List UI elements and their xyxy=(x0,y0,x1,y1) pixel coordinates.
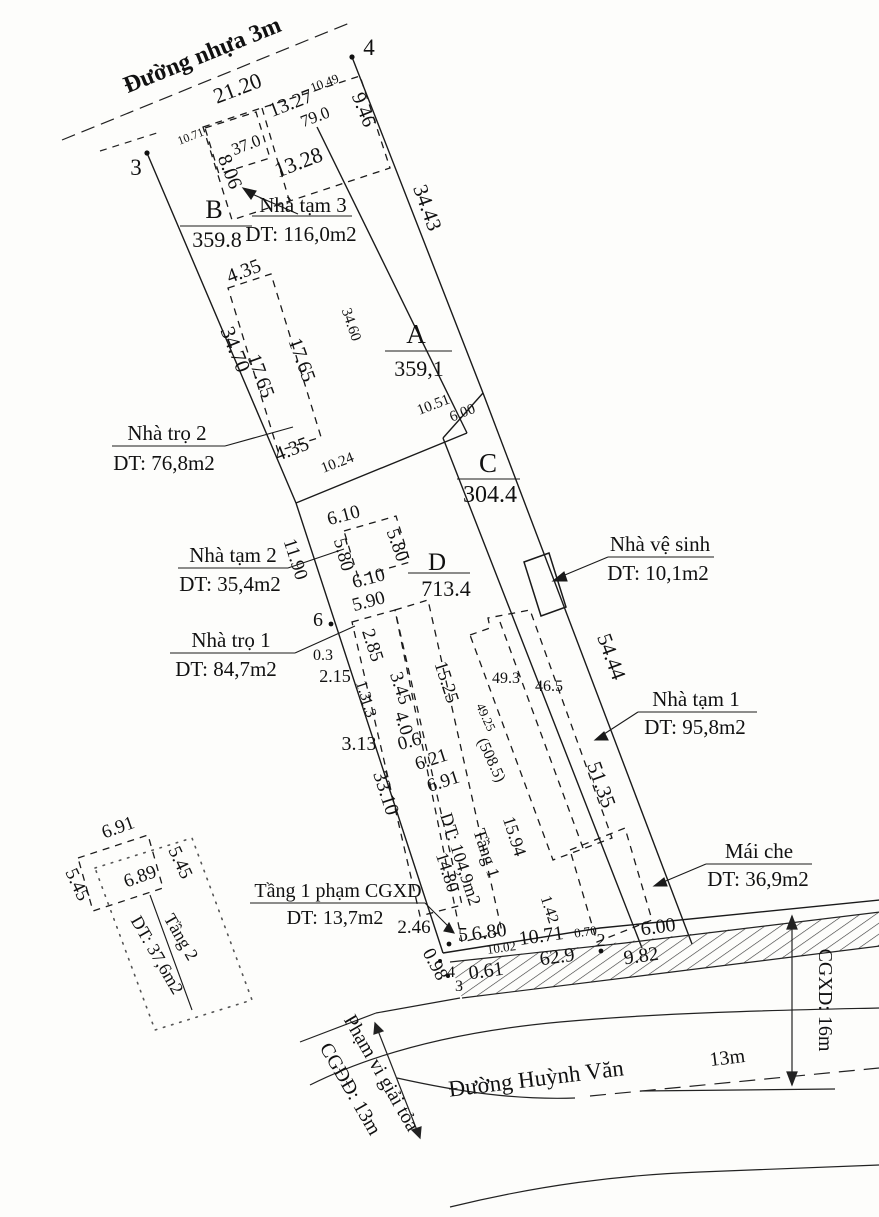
point-3: 3 xyxy=(130,155,142,180)
parcel-d-area: 713.4 xyxy=(421,576,471,601)
nha-ve-sinh-dt: DT: 10,1m2 xyxy=(607,561,709,585)
nha-tam-3-dt: DT: 116,0m2 xyxy=(245,222,356,246)
dim-11-90: 11.90 xyxy=(279,536,312,582)
dim-3-13: 3.13 xyxy=(342,733,377,755)
nha-tam-2-name: Nhà tạm 2 xyxy=(189,543,276,567)
area-49-3: 49.3 xyxy=(492,670,520,687)
nha-tro-2-dt: DT: 76,8m2 xyxy=(113,451,215,475)
survey-point-dots xyxy=(144,54,603,978)
nha-tam-1-name: Nhà tạm 1 xyxy=(652,687,739,711)
dim-3-45: 3.45 xyxy=(385,669,415,707)
parcel-b-area: 359.8 xyxy=(192,227,242,252)
nha-ve-sinh-outline xyxy=(524,553,566,616)
parcel-c-id: C xyxy=(479,448,497,478)
building-outlines xyxy=(78,76,652,942)
dim-6-91-t2: 6.91 xyxy=(99,812,137,843)
dim-21-20: 21.20 xyxy=(210,67,265,108)
dim-6-10-top: 6.10 xyxy=(325,501,363,530)
bottom-road-width: 13m xyxy=(708,1045,746,1071)
dim-4-35-bot: 4.35 xyxy=(272,433,313,466)
dim-4-35-top: 4.35 xyxy=(224,255,265,288)
point-2: 2 xyxy=(597,930,606,950)
dim-6-89: 6.89 xyxy=(121,861,159,892)
dim-51-35: 51.35 xyxy=(582,758,621,811)
nha-ve-sinh-name: Nhà vệ sinh xyxy=(610,532,711,556)
dim-54-44: 54.44 xyxy=(592,630,631,683)
point-4: 4 xyxy=(363,35,375,60)
nha-tam-3-name: Nhà tạm 3 xyxy=(259,193,346,217)
dim-2-15: 2.15 xyxy=(319,666,351,686)
dim-5-45-l: 5.45 xyxy=(60,865,93,904)
point-6: 6 xyxy=(313,609,323,631)
annotation-cgxd: CGXD: 16m xyxy=(814,949,836,1052)
tang-1-pham-dt: DT: 13,7m2 xyxy=(287,907,384,929)
dim-34-43: 34.43 xyxy=(408,181,447,234)
dim-17-65-in: 17.65 xyxy=(284,335,320,385)
tang-1-pham-name: Tầng 1 phạm CGXD xyxy=(254,880,421,902)
dim-10-51: 10.51 xyxy=(415,392,452,419)
dim-5-80-l: 5.80 xyxy=(329,536,358,574)
cadastral-site-plan: Đường nhựa 3m Đường Huỳnh Văn 13m CGXD: … xyxy=(0,0,879,1217)
dim-15-94: 15.94 xyxy=(499,814,531,859)
nha-tro-2-name: Nhà trọ 2 xyxy=(127,421,206,445)
dim-0-3: 0.3 xyxy=(313,647,333,664)
parcel-c-area: 304.4 xyxy=(463,482,517,508)
mai-che-name: Mái che xyxy=(725,839,793,863)
dim-10-24: 10.24 xyxy=(319,450,357,477)
dim-10-49: 10.49 xyxy=(308,71,341,95)
dim-49-25: 49.25 xyxy=(473,701,499,734)
point-5: 5 xyxy=(458,924,468,946)
dim-17-65-out: 17.65 xyxy=(243,351,279,401)
point-3b: 3 xyxy=(455,978,463,995)
dim-2-85: 2.85 xyxy=(357,626,387,664)
nha-tam-1-dt: DT: 95,8m2 xyxy=(644,715,746,739)
dim-5-45-r: 5.45 xyxy=(163,843,196,882)
area-46-5: 46.5 xyxy=(535,678,563,695)
nha-tro-1-name: Nhà trọ 1 xyxy=(191,628,270,652)
parcel-d-id: D xyxy=(428,549,446,576)
dim-8-06: 8.06 xyxy=(213,151,247,192)
dim-9-46: 9.46 xyxy=(347,89,381,130)
dim-6-00-top: 6.00 xyxy=(447,401,477,425)
dim-15-25: 15.25 xyxy=(430,659,463,706)
area-508-5: (508.5) xyxy=(474,735,509,784)
dim-13-28: 13.28 xyxy=(271,141,326,182)
dim-10-02: 10.02 xyxy=(486,938,517,957)
dim-33-10: 33.10 xyxy=(368,768,403,818)
dim-1-3-b: 1.3 xyxy=(357,695,379,719)
site-plan-drawing: Đường nhựa 3m Đường Huỳnh Văn 13m CGXD: … xyxy=(0,0,879,1217)
mai-che-dt: DT: 36,9m2 xyxy=(707,867,809,891)
nha-tam-1-divider xyxy=(500,622,583,848)
dim-2-46: 2.46 xyxy=(397,917,430,938)
nha-tro-1-dt: DT: 84,7m2 xyxy=(175,657,277,681)
nha-tam-2-dt: DT: 35,4m2 xyxy=(179,572,281,596)
parcel-a-area: 359,1 xyxy=(394,356,444,381)
parcel-a-id: A xyxy=(406,319,426,349)
dim-10-71-top: 10.71 xyxy=(175,125,205,148)
dim-0-70: 0.70 xyxy=(573,923,598,941)
dim-1-42: 1.42 xyxy=(537,894,562,926)
dim-5-80-r: 5.80 xyxy=(382,526,413,564)
parcel-b-id: B xyxy=(205,195,222,224)
dim-34-60: 34.60 xyxy=(338,306,364,343)
